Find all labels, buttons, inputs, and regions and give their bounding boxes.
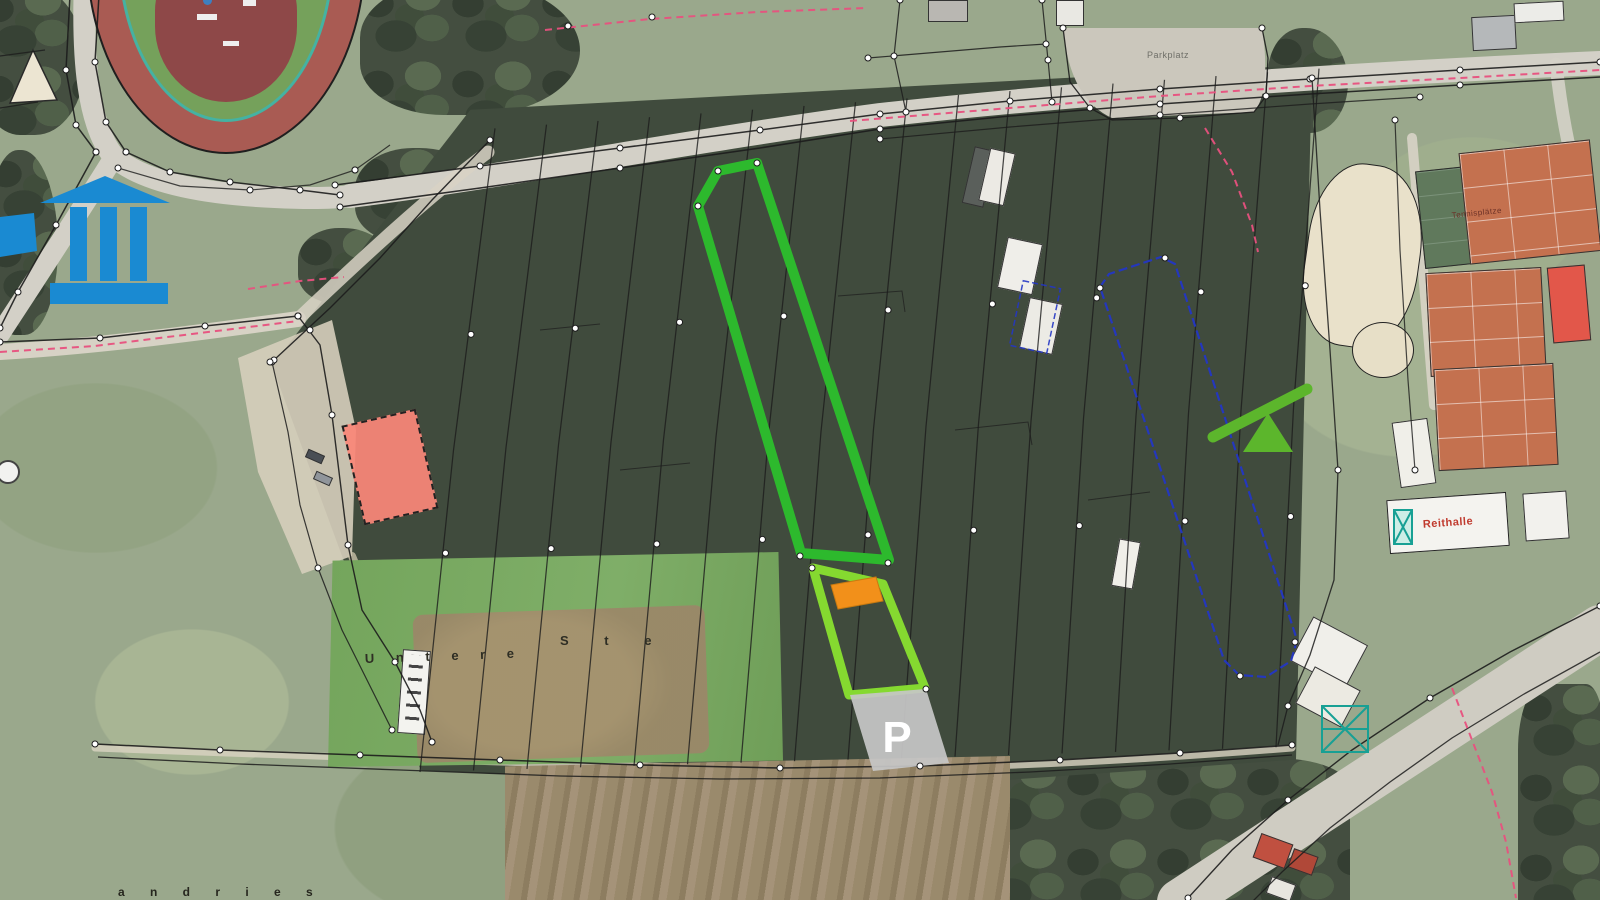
tennis-courts-label: Tennisplätze	[1451, 206, 1502, 220]
parcel-outline-blue[interactable]	[1100, 257, 1297, 677]
parking-area-overlay[interactable]: P	[850, 689, 949, 771]
aerial-cadastral-map: Reithalle Parkplatz PU n t e r eS t ea n…	[0, 0, 1600, 900]
field-name-label: a n d r i e s	[118, 885, 324, 899]
field-name-label: S t e	[560, 633, 667, 648]
parcel-outline-green[interactable]	[698, 163, 889, 560]
parking-marker-label: P	[882, 713, 911, 762]
field-name-label: U n t e r e	[365, 645, 524, 666]
building-footprint-orange[interactable]	[831, 577, 883, 609]
cadastral-layer: PU n t e r eS t ea n d r i e sTennisplät…	[0, 0, 1600, 900]
monument-icon[interactable]	[0, 176, 170, 304]
